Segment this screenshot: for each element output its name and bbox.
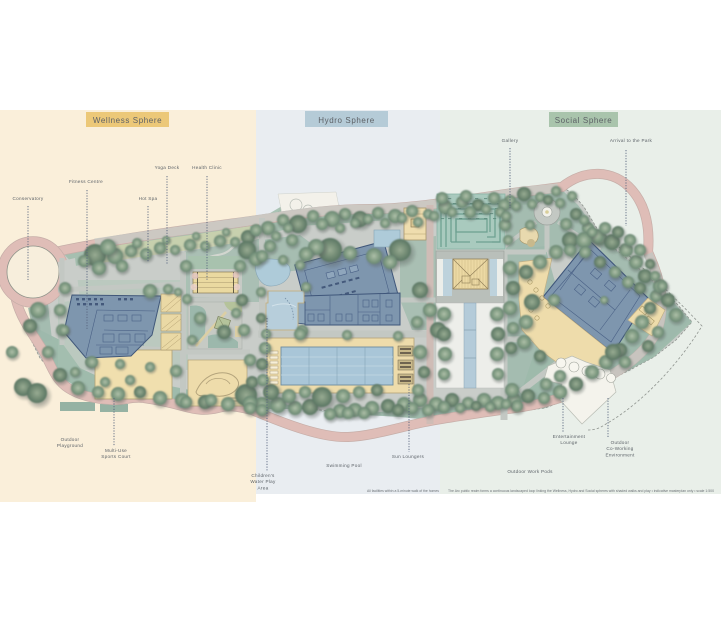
svg-text:Wellness Sphere: Wellness Sphere bbox=[93, 116, 162, 125]
svg-text:Fitness Centre: Fitness Centre bbox=[69, 179, 103, 184]
svg-text:Hydro Sphere: Hydro Sphere bbox=[318, 116, 375, 125]
svg-text:Multi-Use: Multi-Use bbox=[105, 448, 127, 453]
svg-text:Yoga Deck: Yoga Deck bbox=[155, 165, 180, 170]
svg-text:Co-Working: Co-Working bbox=[606, 446, 633, 451]
svg-text:Entertainment: Entertainment bbox=[553, 434, 586, 439]
svg-text:Outdoor Work Pods: Outdoor Work Pods bbox=[507, 469, 553, 474]
svg-text:Conservatory: Conservatory bbox=[13, 196, 44, 201]
svg-text:Hot Spa: Hot Spa bbox=[139, 196, 158, 201]
svg-text:Sun Loungers: Sun Loungers bbox=[392, 454, 425, 459]
svg-text:Outdoor: Outdoor bbox=[611, 440, 630, 445]
svg-text:Water Play: Water Play bbox=[250, 479, 276, 484]
svg-text:Health Clinic: Health Clinic bbox=[192, 165, 222, 170]
svg-text:The Arc public realm forms a c: The Arc public realm forms a continuous … bbox=[448, 489, 714, 493]
svg-text:All facilities within a 5-minu: All facilities within a 5-minute walk of… bbox=[367, 489, 439, 493]
svg-text:Swimming Pool: Swimming Pool bbox=[326, 463, 362, 468]
svg-text:Social Sphere: Social Sphere bbox=[555, 116, 613, 125]
svg-text:Sports Court: Sports Court bbox=[101, 454, 131, 459]
svg-text:Lounge: Lounge bbox=[560, 440, 577, 445]
svg-text:Children's: Children's bbox=[251, 473, 275, 478]
svg-text:Environment: Environment bbox=[605, 452, 635, 457]
svg-text:Playground: Playground bbox=[57, 443, 83, 448]
svg-text:Area: Area bbox=[258, 485, 269, 490]
svg-text:Gallery: Gallery bbox=[502, 138, 519, 143]
svg-text:Arrival to the Park: Arrival to the Park bbox=[610, 138, 653, 143]
svg-text:Outdoor: Outdoor bbox=[61, 437, 80, 442]
